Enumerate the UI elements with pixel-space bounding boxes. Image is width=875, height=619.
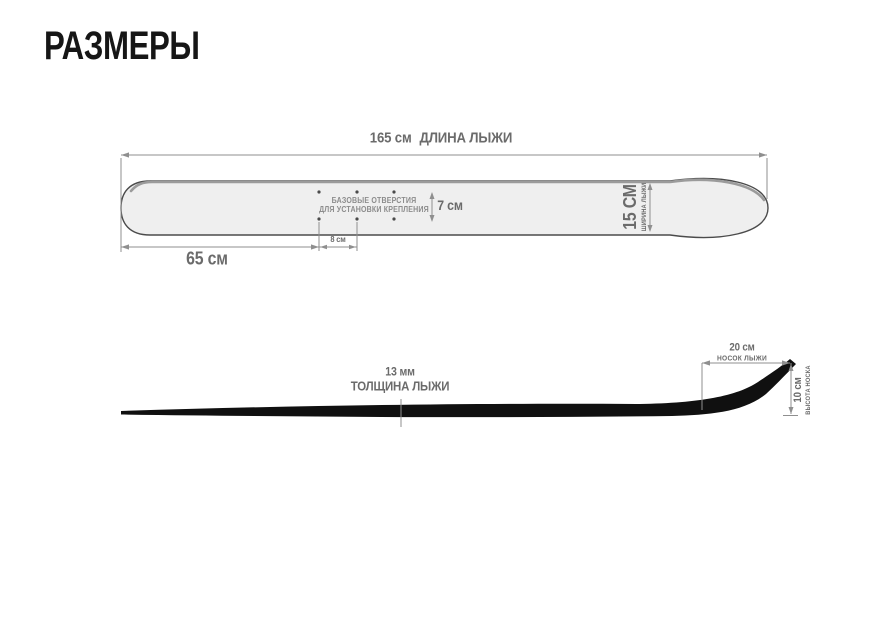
tip-length-label: 20 см НОСОК ЛЫЖИ xyxy=(717,341,767,362)
thickness-label: 13 мм ТОЛЩИНА ЛЫЖИ xyxy=(351,366,450,395)
ski-dimensions-diagram: РАЗМЕРЫ 165 смДЛИНА ЛЫЖИ БАЗОВЫЕ ОТВЕРСТ… xyxy=(0,0,875,619)
hole-row-gap-label: 7 см xyxy=(437,197,463,213)
tip-length-caption: НОСОК ЛЫЖИ xyxy=(717,354,767,363)
width-label: 15 СМ ШИРИНА ЛЫЖИ xyxy=(620,183,648,231)
hole-spacing-label: 8 см xyxy=(330,234,345,244)
holes-note-line2: ДЛЯ УСТАНОВКИ КРЕПЛЕНИЯ xyxy=(319,205,429,214)
length-caption: ДЛИНА ЛЫЖИ xyxy=(419,130,512,147)
tail-offset-label: 65 см xyxy=(186,249,228,270)
thickness-value: 13 мм xyxy=(351,366,450,380)
width-caption: ШИРИНА ЛЫЖИ xyxy=(641,183,648,231)
tip-height-caption: ВЫСОТА НОСКА xyxy=(805,365,812,414)
diagram-canvas xyxy=(0,0,875,619)
length-value: 165 см xyxy=(370,130,412,147)
width-value: 15 СМ xyxy=(620,183,641,231)
tip-height-label: 10 см ВЫСОТА НОСКА xyxy=(792,365,812,414)
length-dimension-label: 165 смДЛИНА ЛЫЖИ xyxy=(370,130,512,147)
holes-note-line1: БАЗОВЫЕ ОТВЕРСТИЯ xyxy=(319,196,429,205)
thickness-caption: ТОЛЩИНА ЛЫЖИ xyxy=(351,379,450,394)
ski-side-profile xyxy=(121,359,796,417)
page-title: РАЗМЕРЫ xyxy=(44,24,200,69)
tip-length-value: 20 см xyxy=(717,341,767,354)
tip-height-value: 10 см xyxy=(792,365,805,414)
holes-note: БАЗОВЫЕ ОТВЕРСТИЯ ДЛЯ УСТАНОВКИ КРЕПЛЕНИ… xyxy=(319,196,429,214)
